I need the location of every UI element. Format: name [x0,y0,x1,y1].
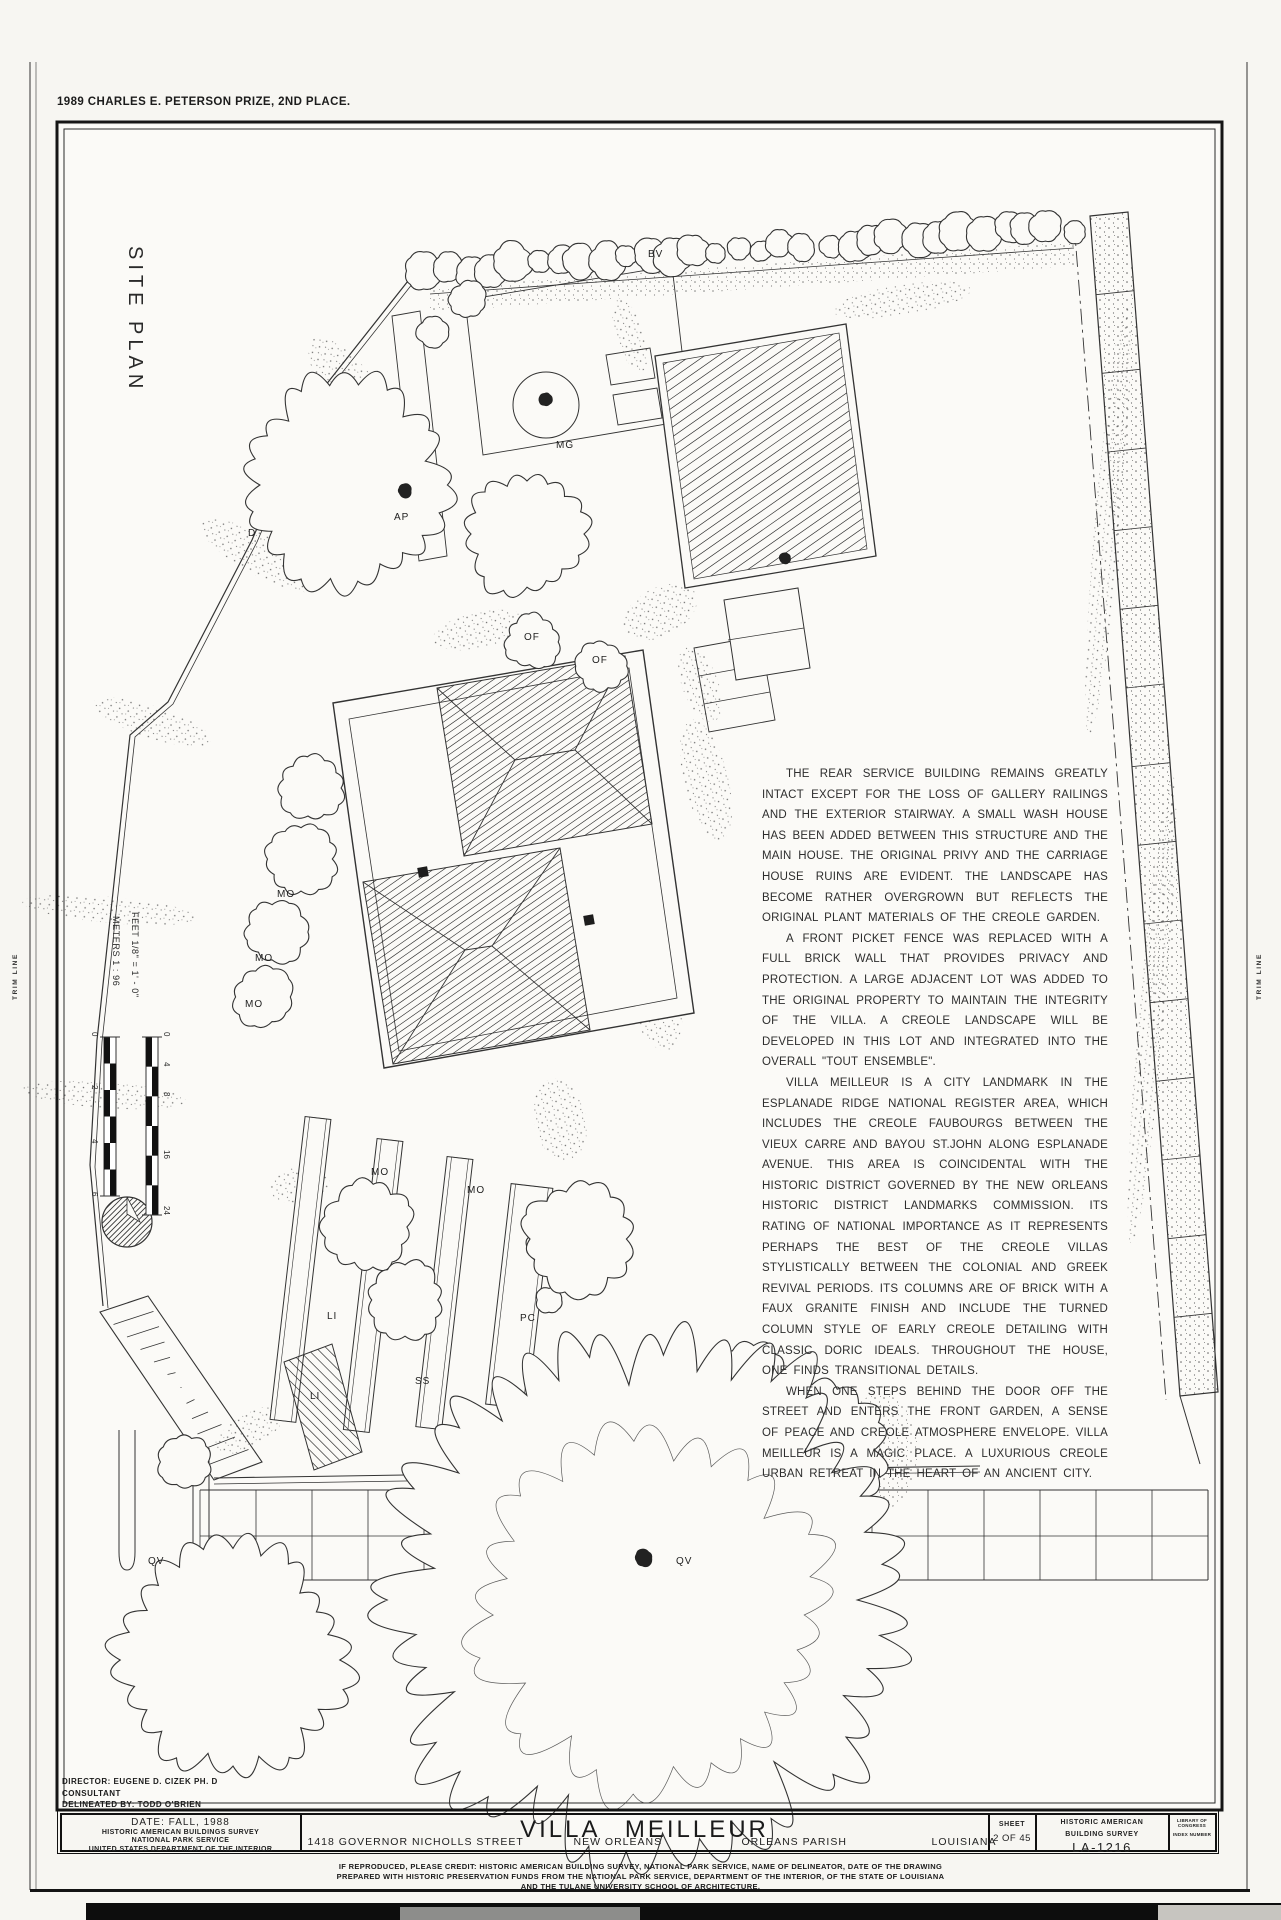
feet-tick: 0 [162,1032,171,1036]
survey-line: BUILDING SURVEY [1037,1830,1168,1839]
meters-tick: 2 [90,1085,99,1089]
award-caption: 1989 CHARLES E. PETERSON PRIZE, 2ND PLAC… [57,96,351,108]
feet-tick: 16 [162,1150,171,1159]
habs-sheet: 1989 CHARLES E. PETERSON PRIZE, 2ND PLAC… [0,0,1281,1920]
narrative-paragraph: THE REAR SERVICE BUILDING REMAINS GREATL… [762,764,1108,929]
date-label: DATE: FALL, 1988 [62,1817,300,1828]
plant-label-bv: BV [648,249,663,260]
plant-label-mo: MO [371,1167,389,1178]
credit-line: PREPARED WITH HISTORIC PRESERVATION FUND… [0,1872,1281,1882]
director-credit: DIRECTOR: EUGENE D. CIZEK PH. D [62,1777,218,1786]
plant-label-pc: PC [520,1313,536,1324]
plant-label-of: OF [592,655,608,666]
narrative-paragraph: A FRONT PICKET FENCE WAS REPLACED WITH A… [762,929,1108,1073]
street-address: 1418 GOVERNOR NICHOLLS STREET [308,1836,524,1848]
plant-label-mo: MO [245,999,263,1010]
city-label: NEW ORLEANS [574,1836,663,1848]
loc-line: LIBRARY OF CONGRESS [1170,1818,1215,1829]
meters-tick: 6 [90,1192,99,1196]
state-label: LOUISIANA [932,1836,997,1848]
reproduction-credits: IF REPRODUCED, PLEASE CREDIT: HISTORIC A… [0,1862,1281,1892]
bottom-trim-rule [30,1889,1250,1892]
scan-edge-gap [400,1907,640,1920]
plant-label-ap: AP [394,512,409,523]
agency-line: UNITED STATES DEPARTMENT OF THE INTERIOR [62,1846,300,1855]
parish-label: ORLEANS PARISH [742,1836,847,1848]
meters-tick: 0 [90,1032,99,1036]
plant-label-mo: MO [467,1185,485,1196]
plant-label-mg: MG [556,440,574,451]
plant-label-li: LI [310,1391,320,1402]
scale-feet-label: FEET 1/8" = 1' - 0" [130,912,140,998]
title-block: DATE: FALL, 1988 HISTORIC AMERICAN BUILD… [57,1810,1219,1854]
delineator-credit: DELINEATED BY: TODD O'BRIEN [62,1800,201,1809]
credit-line: IF REPRODUCED, PLEASE CREDIT: HISTORIC A… [0,1862,1281,1872]
sheet-label: SHEET [990,1821,1035,1828]
project-cell: VILLA MEILLEUR 1418 GOVERNOR NICHOLLS ST… [302,1815,990,1850]
feet-tick: 8 [162,1092,171,1096]
narrative-paragraph: VILLA MEILLEUR IS A CITY LANDMARK IN THE… [762,1073,1108,1382]
agency-cell: DATE: FALL, 1988 HISTORIC AMERICAN BUILD… [62,1815,302,1850]
loc-line: INDEX NUMBER [1170,1832,1215,1838]
agency-line: NATIONAL PARK SERVICE [62,1837,300,1846]
plant-label-ss: SS [415,1376,430,1387]
plant-label-mo: MO [277,889,295,900]
survey-number: LA-1216 [1037,1840,1168,1855]
agency-line: HISTORIC AMERICAN BUILDINGS SURVEY [62,1829,300,1838]
scan-edge-gap [1158,1905,1281,1920]
sheet-title: SITE PLAN [122,246,146,393]
feet-tick: 24 [162,1206,171,1215]
trim-line-label-left: TRIM LINE [12,953,19,1000]
plant-label-of: OF [524,632,540,643]
sheet-number: 2 OF 45 [990,1833,1035,1844]
consultant-credit: CONSULTANT [62,1789,121,1798]
sheet-cell: SHEET 2 OF 45 [990,1815,1037,1850]
narrative-text: THE REAR SERVICE BUILDING REMAINS GREATL… [762,764,1108,1485]
scale-meters-label: METERS 1 : 96 [111,916,121,986]
trim-line-label-right: TRIM LINE [1256,953,1263,1000]
plant-label-qv: QV [148,1556,164,1567]
feet-tick: 4 [162,1062,171,1066]
scan-edge-bar [86,1903,1281,1920]
plant-label-li: LI [327,1311,337,1322]
plant-label-d: D [248,528,256,539]
survey-cell: HISTORIC AMERICAN BUILDING SURVEY LA-121… [1037,1815,1170,1850]
meters-tick: 4 [90,1139,99,1143]
loc-cell: LIBRARY OF CONGRESS INDEX NUMBER [1170,1815,1215,1850]
plant-label-qv: QV [676,1556,692,1567]
survey-line: HISTORIC AMERICAN [1037,1818,1168,1827]
narrative-paragraph: WHEN ONE STEPS BEHIND THE DOOR OFF THE S… [762,1382,1108,1485]
plant-label-mo: MO [255,953,273,964]
